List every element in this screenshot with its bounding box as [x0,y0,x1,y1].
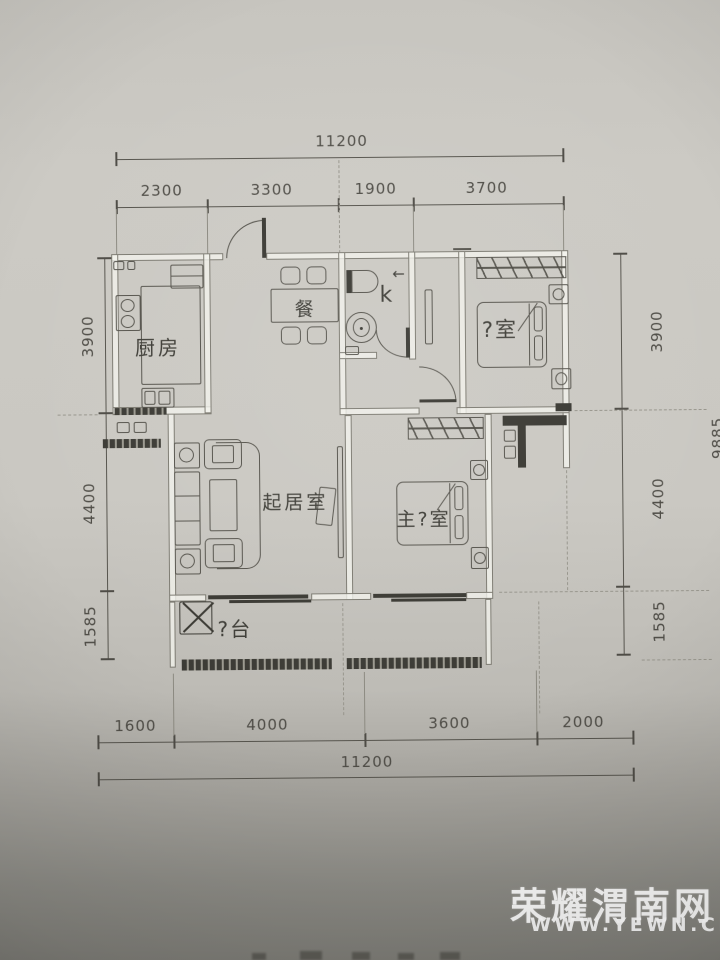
dim-top-seg-3: 1900 [355,180,397,198]
dining-chair [281,327,301,345]
nightstand-lamp [553,288,565,300]
toilet-bowl [351,270,378,293]
window-below-kitchen [103,439,161,449]
balcony-rail-right [347,657,482,669]
sofa-seam [175,495,199,496]
grid-dashed-line [566,470,568,590]
room-label-living: 起居室 [262,487,328,515]
pillow [454,515,463,539]
nightstand-lamp [474,552,486,564]
grid-dashed-line [58,414,98,415]
extension-line [207,208,208,254]
floor-plan: 11200 2300 3300 1900 3700 1600 4000 3600… [0,0,720,960]
table-lamp [180,553,195,568]
wall-balcony-right [485,599,492,665]
nightstand-lamp [555,372,567,385]
table-lamp [179,447,194,462]
sofa-seam [176,520,200,521]
stove-burner [121,299,135,312]
entry-arrow: ← [392,265,405,283]
sliding-door-right [373,593,466,598]
entry-door-arc [226,220,265,258]
caption-mark [352,952,370,960]
dim-tick [562,148,564,162]
sink-basin [158,391,170,405]
pillow [534,306,543,331]
dim-tick [97,735,99,749]
coffee-table [209,479,237,531]
small-fixture-box [117,422,130,433]
dim-right-line [620,253,625,656]
extension-line [536,670,538,732]
dim-top-total: 11200 [315,132,368,150]
dim-tick [536,731,538,745]
extension-line [173,674,175,736]
watermark-site-url: WWW.YEWN.CN [530,914,720,936]
room-label-master: 主?室 [396,504,450,531]
dim-left-line [104,257,109,660]
wall-mid-horizontal-right [457,406,570,414]
room-label-dining: 餐 [295,294,314,321]
flue-wall-band [503,415,567,426]
grid-dashed-line [342,603,344,715]
small-fixture-box [504,446,516,459]
sofa [174,471,201,545]
dim-tick [613,253,627,255]
dim-tick [364,733,366,747]
dim-bottom-seg-1: 1600 [114,717,156,735]
grid-dashed-line [338,160,340,253]
wall-living-master-divider [345,415,354,600]
stove-burner [121,315,135,328]
small-fixture-box [134,422,147,433]
small-wall-mark [453,248,471,250]
tv-cabinet [337,446,344,558]
wall-dining-right [338,252,346,415]
caption-mark [398,953,414,960]
master-door-leaf [419,399,456,402]
dim-top-seg-2: 3300 [251,181,293,199]
grid-dashed-line [642,659,712,661]
dim-right-seg-3: 1585 [650,600,668,642]
room-label-kitchen: 厨房 [135,332,181,361]
dim-bottom-total-line [98,775,633,781]
wall-kitchen-left [111,254,119,414]
dining-chair [280,267,300,285]
kitchen-cabinet-shelf [171,275,202,276]
grid-dashed-line [499,590,709,593]
wardrobe-hangers [408,417,484,440]
bathroom-door-leaf [406,328,410,358]
hall-closet [425,289,433,344]
grid-dashed-line [575,409,707,411]
dining-chair [306,266,326,284]
dim-bottom-seg-2: 4000 [246,716,288,734]
bathroom-door-arc [376,330,408,358]
caption-mark [440,952,460,960]
dim-tick [617,654,631,656]
dim-tick [98,772,100,786]
dim-left-seg-2: 4400 [80,482,98,524]
nightstand-lamp [473,464,485,476]
wall-mid-horizontal-left [340,407,420,415]
dim-tick [173,735,175,749]
dim-bottom-seg-4: 2000 [562,713,604,731]
master-door-arc [419,366,456,402]
dim-top-segment-line [116,203,565,208]
dim-tick [100,590,114,592]
dim-tick [97,257,111,259]
dim-tick [99,412,113,414]
extension-line [413,207,414,253]
dim-top-total-line [115,155,564,160]
wall-master-right [485,414,494,599]
bath-small-box [345,346,359,355]
window-mark [113,261,124,270]
wall-bedroom-left [458,251,466,414]
wall-outer-right [561,250,570,468]
caption-mark [252,953,266,960]
entry-door-leaf [262,218,266,258]
room-label-balcony: ?台 [217,613,252,642]
armchair-cushion [212,445,234,463]
dim-bottom-seg-3: 3600 [428,714,470,732]
caption-mark [300,951,322,960]
sliding-door-right-leaf [391,598,466,602]
photo-of-floor-plan: 11200 2300 3300 1900 3700 1600 4000 3600… [0,0,720,960]
pillow [534,335,543,360]
dim-right-overall: 9885 [709,417,720,459]
dim-tick [101,658,115,660]
dim-tick [616,586,630,588]
dim-tick [633,768,635,782]
dining-chair [307,326,327,344]
window-kitchen [115,408,167,415]
wardrobe-hangers [476,256,566,279]
dim-left-seg-1: 3900 [79,315,97,357]
armchair-cushion [213,544,235,562]
dark-wall-piece [556,403,572,411]
room-label-bedroom: ?室 [482,314,518,344]
sink-basin [144,391,155,405]
grid-dashed-line [538,601,540,713]
dim-bottom-total: 11200 [341,753,394,771]
dim-tick [632,731,634,745]
room-label-bath: k [379,283,392,308]
dim-top-seg-1: 2300 [141,182,183,200]
extension-line [116,209,117,255]
wall-balcony-left [169,602,176,668]
pillow [454,486,463,510]
dim-left-seg-3: 1585 [81,605,99,647]
sliding-door-left-leaf [229,599,311,603]
dim-right-seg-1: 3900 [648,310,666,352]
dim-top-seg-4: 3700 [466,179,508,197]
balcony-rail-left [182,658,332,670]
dim-tick [115,152,117,166]
window-mark [127,261,135,270]
dim-right-seg-2: 4400 [649,477,667,519]
extension-line [563,205,564,251]
extension-line [364,672,366,734]
wall-kitchen-right [203,253,211,413]
wall-bottom-2 [311,593,371,601]
small-fixture-box [504,430,516,442]
washbasin-drain [360,327,363,330]
flue-wall-bar [518,426,526,468]
